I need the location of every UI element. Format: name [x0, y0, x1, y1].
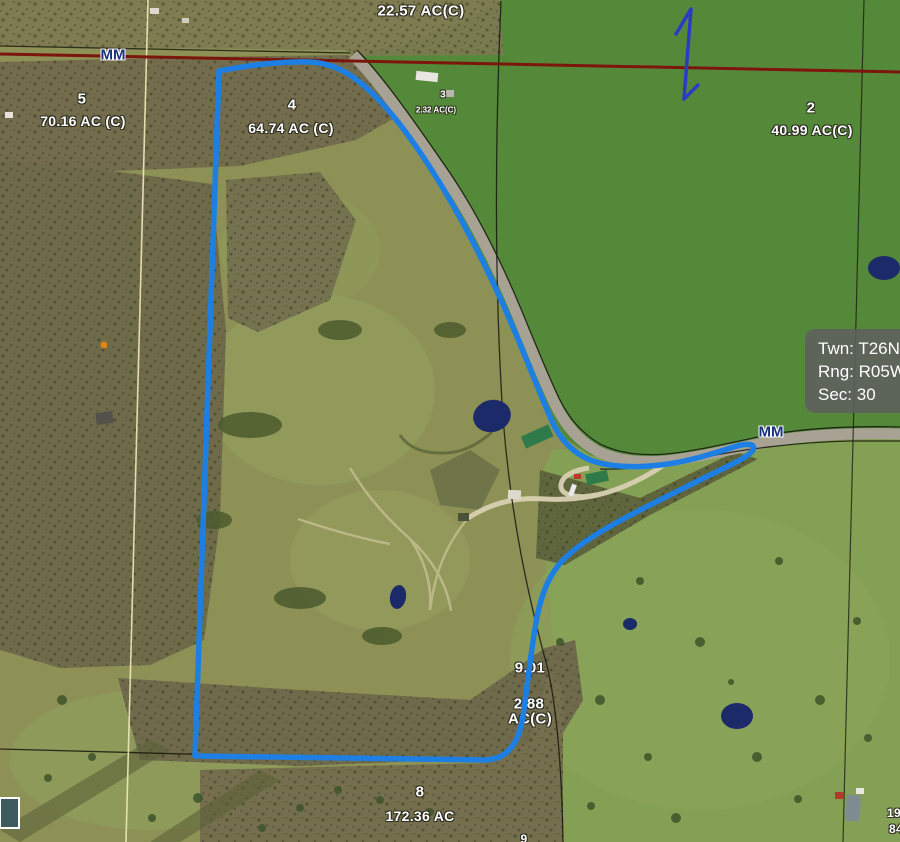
- aerial-basemap[interactable]: [0, 0, 900, 842]
- parcel-5-acreage-label: 70.16 AC (C): [40, 113, 126, 129]
- right-edge-partial-label-top: 19.: [887, 806, 900, 820]
- section-row: Sec: 30: [818, 383, 900, 406]
- parcel-2-acreage-label: 40.99 AC(C): [771, 122, 852, 138]
- parcel-8-acreage-label: 172.36 AC: [385, 808, 454, 824]
- small-parcel-acreage-line2: AC(C): [508, 711, 552, 728]
- parcel-3-acreage-label: 2.32 AC(C): [416, 106, 456, 115]
- parcel-8-number-label: 8: [416, 784, 425, 801]
- parcel-map-viewport[interactable]: 22.57 AC(C) MM 5 70.16 AC (C) 4 64.74 AC…: [0, 0, 900, 842]
- terrain-patch: [205, 295, 435, 485]
- parcel-2-number-label: 2: [807, 100, 816, 117]
- township-info-box: Twn: T26N Rng: R05W Sec: 30: [805, 329, 900, 413]
- parcel-4-acreage-label: 64.74 AC (C): [248, 120, 334, 136]
- right-edge-partial-label-bottom: 84: [889, 822, 900, 836]
- road-label-mm-right: MM: [759, 424, 784, 441]
- parcel-3-number-label: 3: [440, 90, 446, 101]
- top-parcel-acreage-label: 22.57 AC(C): [378, 3, 465, 20]
- parcel-4-number-label: 4: [288, 97, 297, 114]
- parcel-5-number-label: 5: [78, 91, 87, 108]
- partial-number-label: 9.01: [515, 660, 545, 677]
- road-label-mm-top: MM: [101, 47, 126, 64]
- bottom-edge-partial-label: 9: [521, 832, 528, 842]
- township-row: Twn: T26N: [818, 337, 900, 360]
- range-row: Rng: R05W: [818, 360, 900, 383]
